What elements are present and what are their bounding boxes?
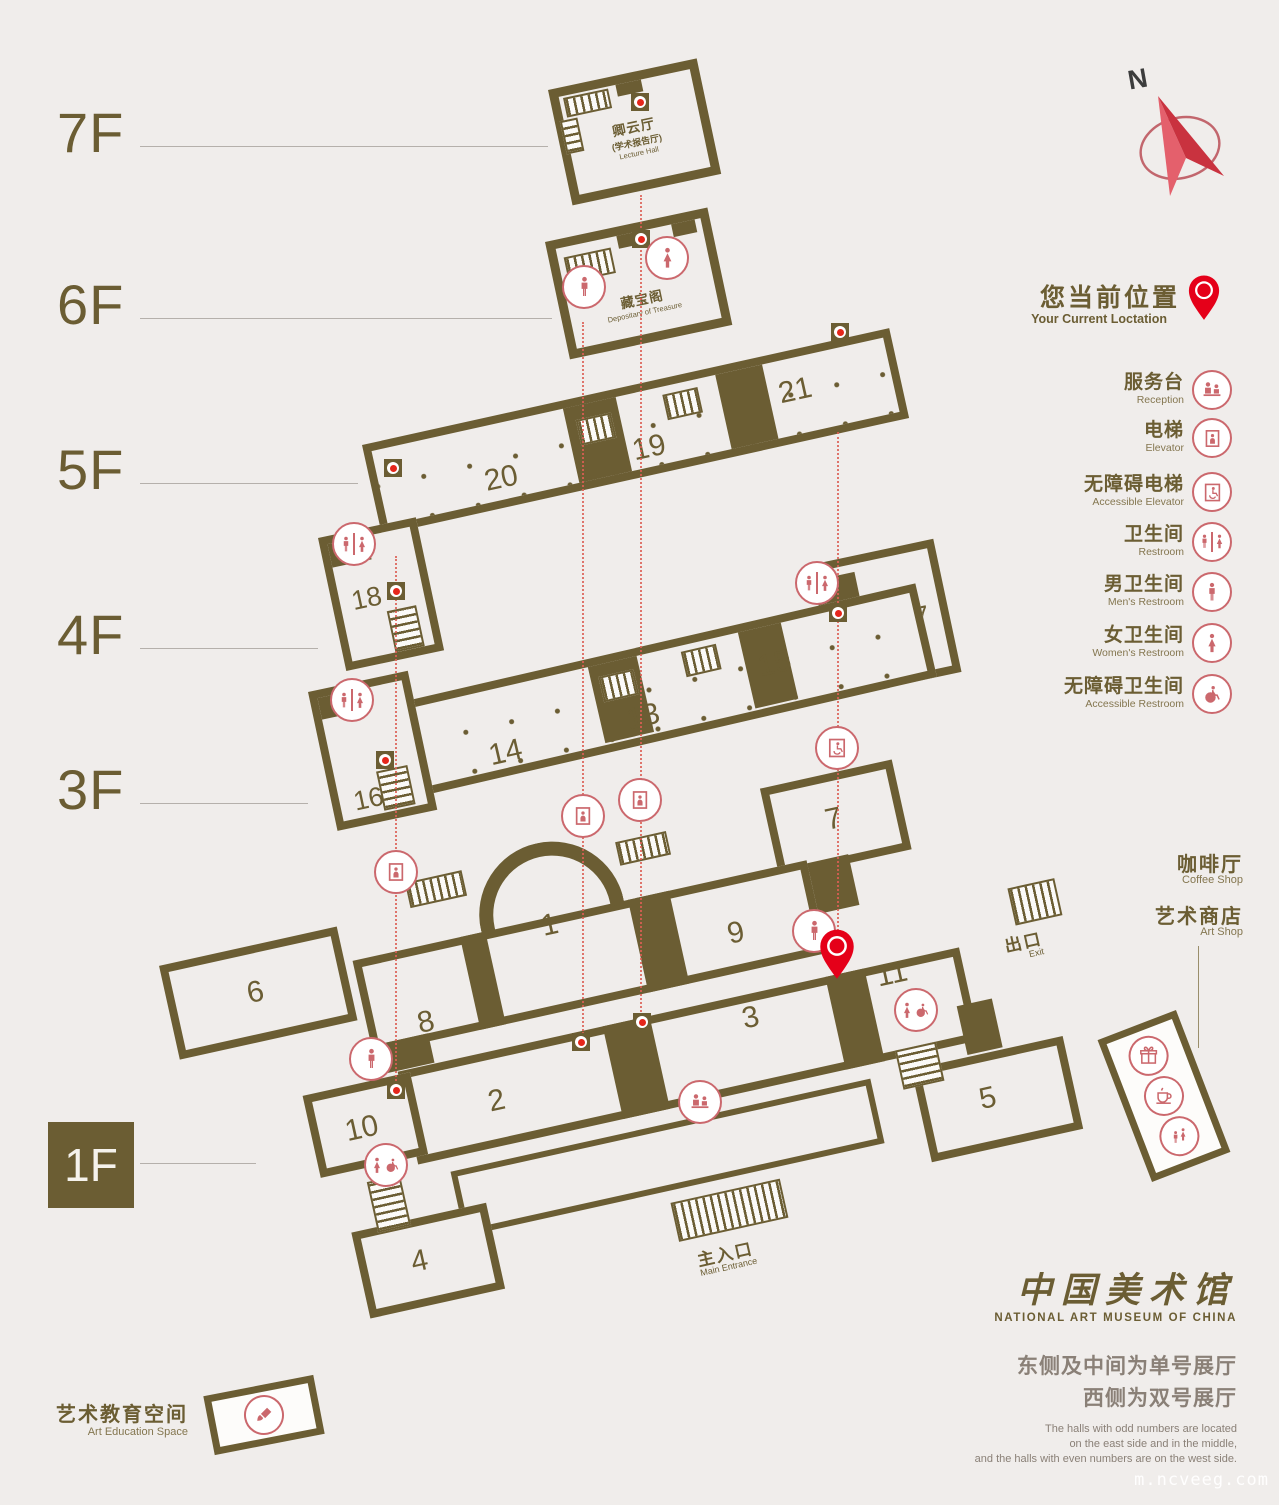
legend-row-accessible-elevator: 无障碍电梯 Accessible Elevator [972, 474, 1232, 520]
legend-row-mens-restroom: 男卫生间 Men's Restroom [972, 574, 1232, 620]
paint-brush-icon [241, 1392, 288, 1439]
museum-floor-map: 7F 6F 5F 4F 3F 1F N 卿云厅 (学术报告厅) Lecture … [0, 0, 1279, 1505]
elevator-dot [829, 604, 847, 622]
connector-line [395, 556, 397, 1084]
legend-elevator-en: Elevator [984, 442, 1184, 454]
hall-16: 16 [351, 783, 386, 816]
art-shop-label-en: Art Shop [1200, 926, 1243, 938]
hall-21: 21 [776, 373, 815, 410]
floor-line-4f [140, 648, 318, 649]
restroom-icon [795, 561, 839, 605]
womens-accessible-restroom-icon [894, 988, 938, 1032]
legend-restroom-zh: 卫生间 [984, 524, 1184, 546]
watermark: m.ncveeg.com [1134, 1470, 1269, 1490]
legend-accessible-restroom-en: Accessible Restroom [984, 698, 1184, 710]
mens-restroom-icon [1192, 572, 1232, 612]
elevator-dot [376, 751, 394, 769]
legend-row-accessible-restroom: 无障碍卫生间 Accessible Restroom [972, 676, 1232, 722]
stairs-icon [563, 88, 612, 117]
compass-icon [1130, 92, 1234, 204]
hall-13: 13 [623, 699, 662, 736]
restroom-icon [332, 522, 376, 566]
legend-womens-restroom-en: Women's Restroom [984, 647, 1184, 659]
floor-line-3f [140, 803, 308, 804]
legend-accessible-elevator-zh: 无障碍电梯 [984, 474, 1184, 496]
reception-icon [678, 1080, 722, 1124]
plan-5f: 20 19 21 [362, 328, 909, 535]
floor-line-6f [140, 318, 552, 319]
floor-label-6f: 6F [57, 272, 124, 337]
connector-line [837, 432, 839, 947]
hall-19: 19 [630, 430, 669, 467]
elevator-dot [387, 1081, 405, 1099]
coffee-shop-label-en: Coffee Shop [1182, 874, 1243, 886]
legend-mens-restroom-en: Men's Restroom [984, 596, 1184, 608]
hall-note-zh-2: 西侧为双号展厅 [1083, 1382, 1237, 1412]
museum-logo-calligraphy: 中国美术馆 [1017, 1262, 1237, 1313]
coffee-icon [1138, 1070, 1190, 1122]
hall-note-en-3: and the halls with even numbers are on t… [975, 1452, 1237, 1467]
restroom-icon [1154, 1110, 1206, 1162]
elevator-dot [631, 93, 649, 111]
womens-accessible-restroom-icon [364, 1143, 408, 1187]
coffee-shop-label-zh: 咖啡厅 [1177, 848, 1243, 877]
hall-15: 15 [755, 646, 794, 683]
elevator-dot [384, 459, 402, 477]
hall-20: 20 [482, 460, 521, 497]
floor-label-1f: 1F [48, 1122, 134, 1208]
hall-lecture: 卿云厅 (学术报告厅) Lecture Hall [574, 104, 698, 170]
connector-line [640, 195, 642, 1015]
stairs-icon [662, 387, 703, 420]
elevator-dot [572, 1033, 590, 1051]
elevator-dot [831, 323, 849, 341]
main-entrance-stairs-icon [670, 1179, 788, 1242]
accessible-restroom-icon [1192, 674, 1232, 714]
connector-line [582, 322, 584, 1034]
wall-block [957, 998, 1003, 1055]
legend-reception-en: Reception [984, 394, 1184, 406]
stairs-icon [387, 605, 425, 652]
gift-icon [1123, 1030, 1175, 1082]
legend-reception-zh: 服务台 [984, 372, 1184, 394]
exit-stairs-icon [1007, 878, 1062, 925]
restroom-icon [330, 678, 374, 722]
legend-accessible-elevator-en: Accessible Elevator [984, 496, 1184, 508]
hall-note-en-1: The halls with odd numbers are located [1045, 1422, 1237, 1437]
wall-block [671, 219, 697, 237]
hall-18: 18 [349, 582, 384, 615]
current-location-label-en: Your Current Loctation [1031, 312, 1167, 326]
art-education-label-zh: 艺术教育空间 [30, 1398, 188, 1427]
elevator-icon [618, 778, 662, 822]
legend-womens-restroom-zh: 女卫生间 [984, 625, 1184, 647]
floor-label-4f: 4F [57, 602, 124, 667]
wall-block [715, 365, 778, 450]
reception-icon [1192, 370, 1232, 410]
elevator-icon [561, 794, 605, 838]
restroom-icon [1192, 522, 1232, 562]
legend-row-womens-restroom: 女卫生间 Women's Restroom [972, 625, 1232, 671]
legend-pin-icon [1186, 274, 1222, 326]
elevator-dot [387, 582, 405, 600]
stairs-icon [615, 831, 671, 866]
elevator-dot [632, 230, 650, 248]
hall-10: 10 [342, 1111, 381, 1148]
amenity-pointer-line [1198, 946, 1199, 1048]
legend-accessible-restroom-zh: 无障碍卫生间 [984, 676, 1184, 698]
mens-restroom-icon [349, 1037, 393, 1081]
legend-mens-restroom-zh: 男卫生间 [984, 574, 1184, 596]
womens-restroom-icon [1192, 623, 1232, 663]
elevator-icon [374, 850, 418, 894]
museum-name-en: NATIONAL ART MUSEUM OF CHINA [994, 1312, 1237, 1324]
art-education-box [203, 1375, 324, 1455]
current-location-label-zh: 您当前位置 [1040, 278, 1180, 314]
womens-restroom-icon [645, 236, 689, 280]
legend-elevator-zh: 电梯 [984, 420, 1184, 442]
mens-restroom-icon [562, 265, 606, 309]
legend-row-elevator: 电梯 Elevator [972, 420, 1232, 466]
elevator-dot [633, 1013, 651, 1031]
current-location-pin [817, 928, 857, 985]
elevator-icon [1192, 418, 1232, 458]
plan-7f: 卿云厅 (学术报告厅) Lecture Hall [548, 58, 721, 205]
floor-label-3f: 3F [57, 757, 124, 822]
legend-restroom-en: Restroom [984, 546, 1184, 558]
art-shop-label-zh: 艺术商店 [1155, 900, 1243, 929]
floor-label-1f-text: 1F [64, 1138, 118, 1192]
floor-line-5f [140, 483, 358, 484]
stairs-icon [681, 644, 722, 677]
floor-label-7f: 7F [57, 100, 124, 165]
floor-label-5f: 5F [57, 437, 124, 502]
exit-label-en: Exit [1028, 946, 1045, 959]
hall-14: 14 [486, 734, 525, 771]
hall-11: 11 [873, 956, 910, 992]
legend-row-restroom: 卫生间 Restroom [972, 524, 1232, 570]
hall-note-zh-1: 东侧及中间为单号展厅 [1017, 1350, 1237, 1380]
accessible-elevator-icon [815, 726, 859, 770]
accessible-elevator-icon [1192, 472, 1232, 512]
legend-row-reception: 服务台 Reception [972, 372, 1232, 418]
art-education-label-en: Art Education Space [30, 1426, 188, 1438]
hall-note-en-2: on the east side and in the middle, [1069, 1437, 1237, 1452]
floor-line-7f [140, 146, 548, 147]
